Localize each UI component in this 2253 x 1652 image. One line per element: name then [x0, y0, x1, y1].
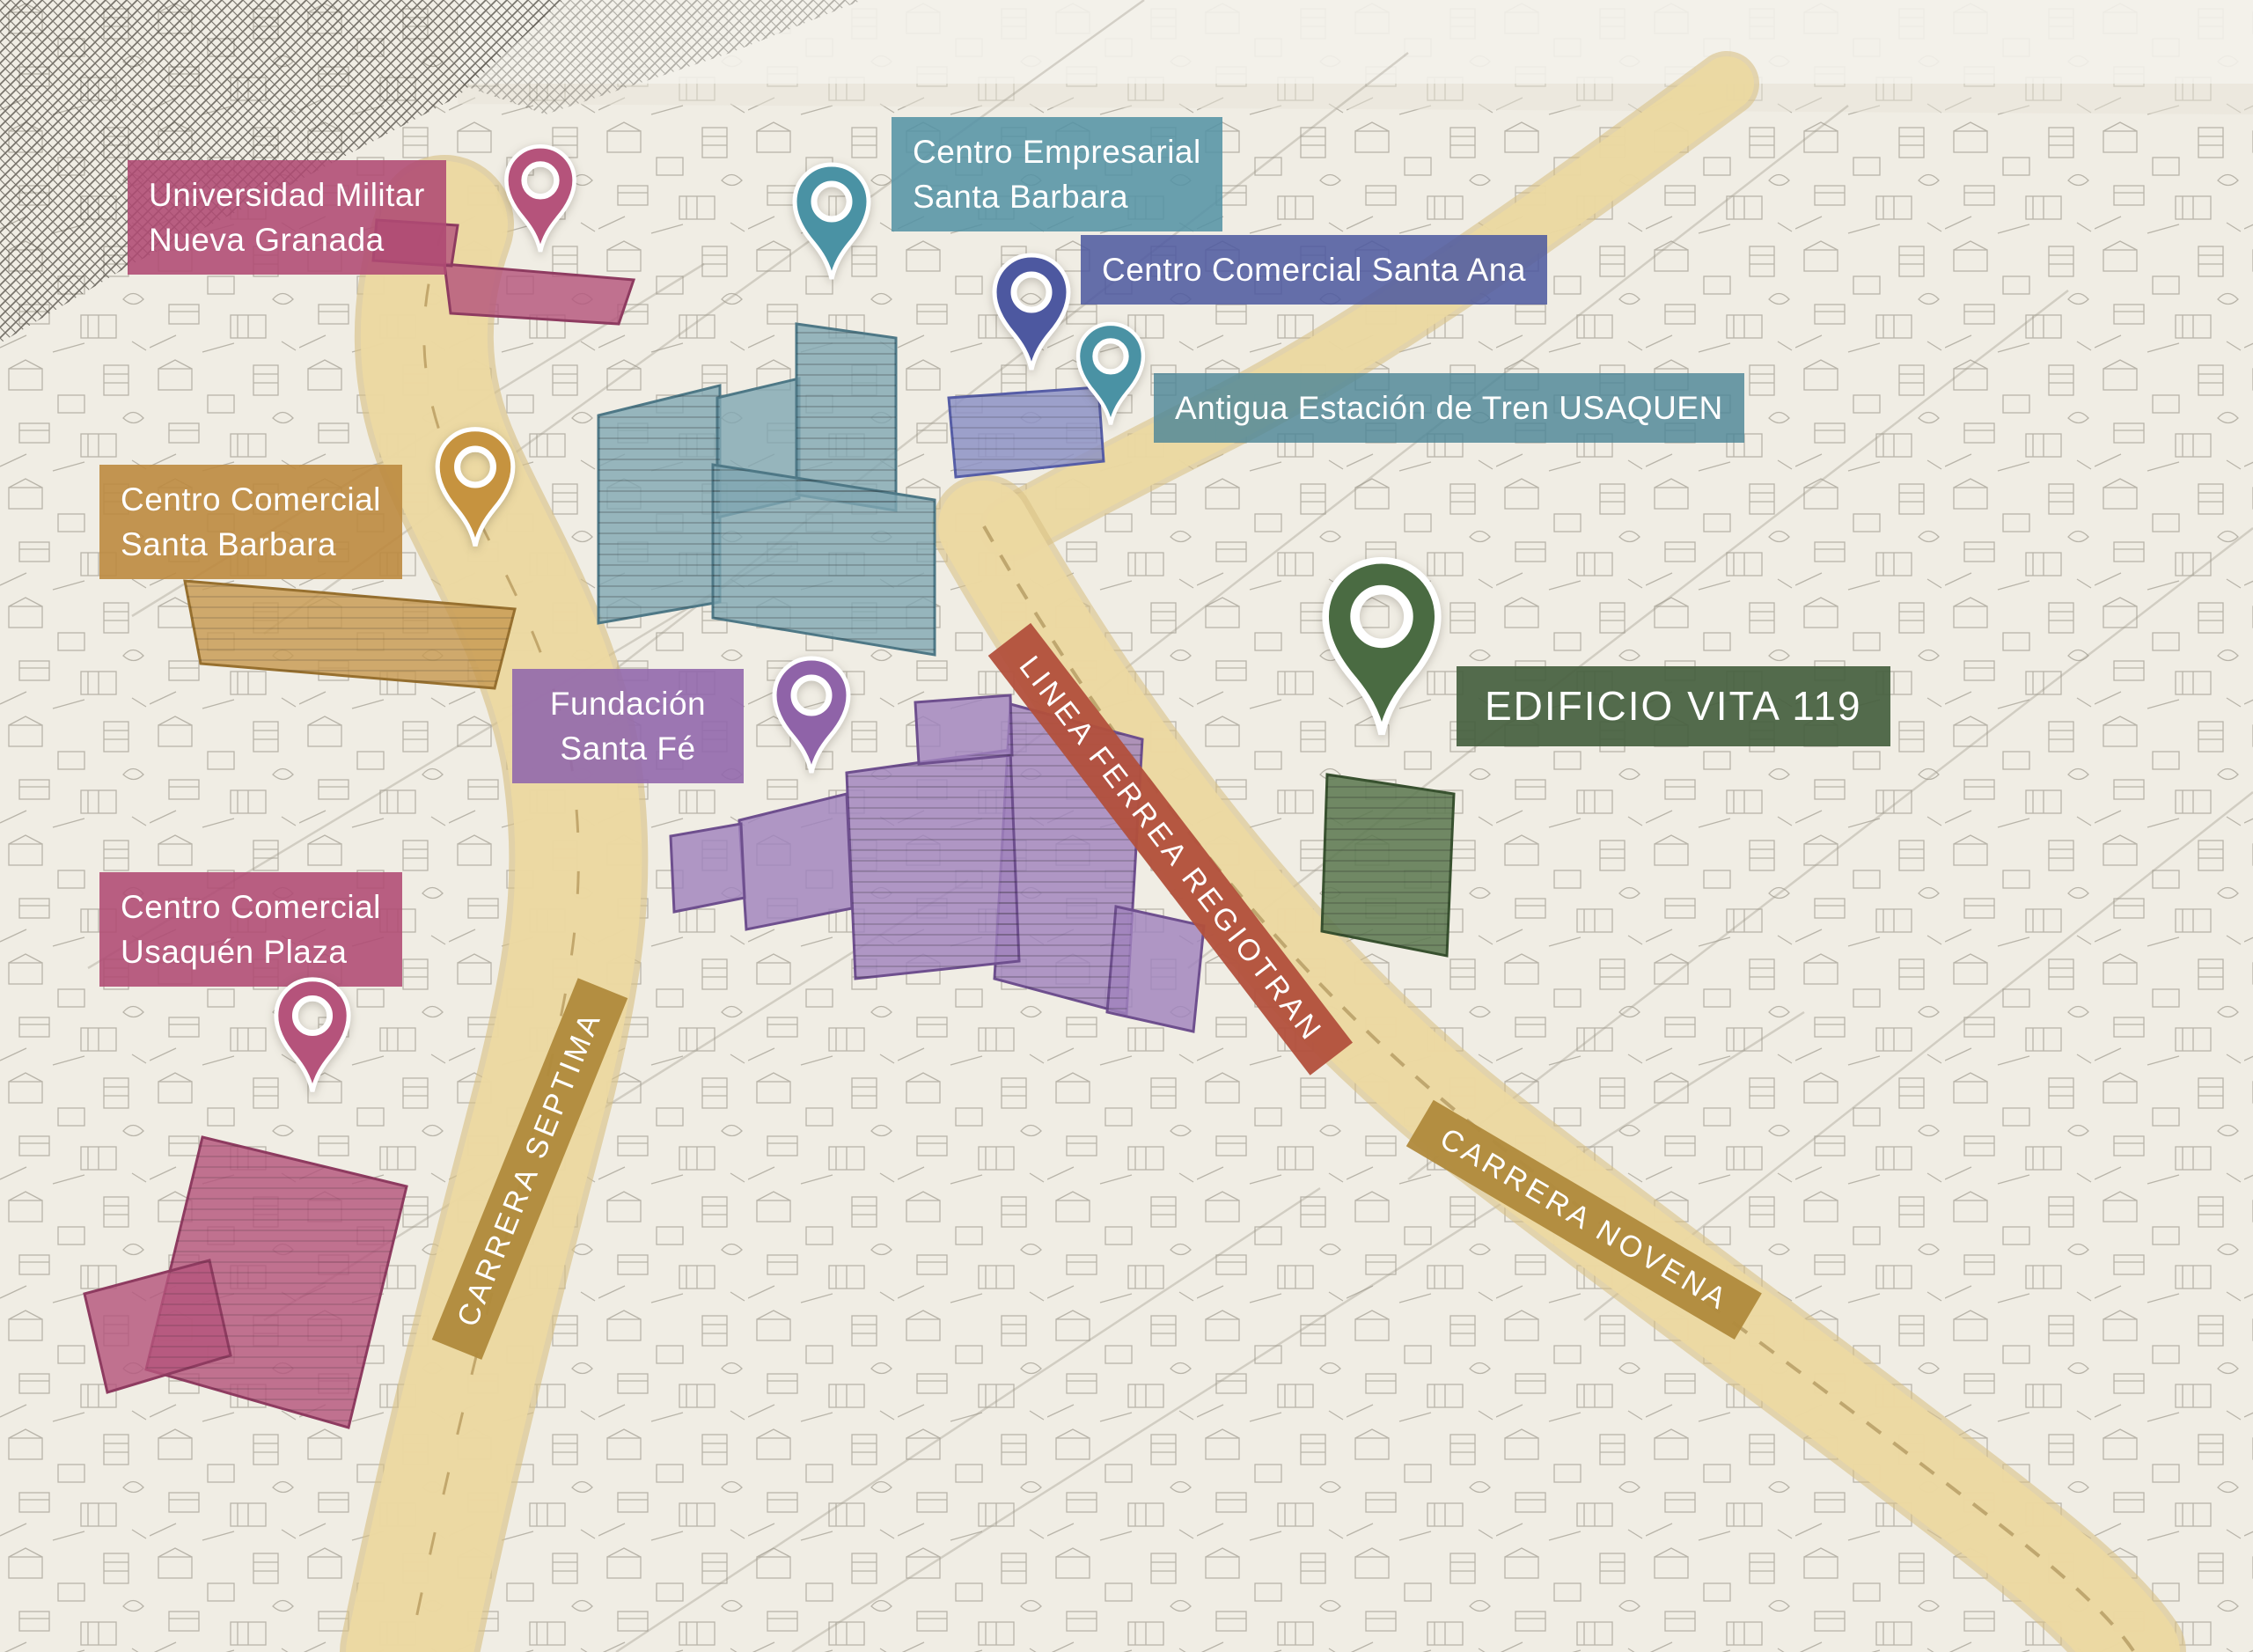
map-pin-icon-centro-empresarial: [788, 151, 876, 294]
landmark-label-centro-empresarial-santa-barbara: Centro Empresarial Santa Barbara: [892, 117, 1222, 231]
landmark-label-centro-comercial-santa-barbara: Centro Comercial Santa Barbara: [99, 465, 402, 579]
map-pin-icon-edificio-vita-119: [1315, 551, 1449, 746]
map-pin-icon-universidad-militar: [500, 134, 581, 266]
map-pin-icon-centro-comercial-santa-barbara: [430, 422, 520, 554]
illustrated-city-map: CARRERA SEPTIMA LINEA FERREA REGIOTRAN C…: [0, 0, 2253, 1652]
landmark-label-universidad-militar: Universidad Militar Nueva Granada: [128, 160, 446, 275]
landmark-label-antigua-estacion-tren-usaquen: Antigua Estación de Tren USAQUEN: [1154, 373, 1744, 443]
landmark-label-fundacion-santa-fe: Fundación Santa Fé: [512, 669, 744, 783]
landmark-label-centro-comercial-usaquen-plaza: Centro Comercial Usaquén Plaza: [99, 872, 402, 987]
map-pin-icon-usaquen-plaza: [269, 959, 356, 1113]
map-pin-icon-fundacion-santa-fe: [767, 651, 855, 782]
landmark-label-edificio-vita-119: EDIFICIO VITA 119: [1457, 666, 1890, 746]
landmark-label-centro-comercial-santa-ana: Centro Comercial Santa Ana: [1081, 235, 1547, 305]
map-pin-icon-centro-comercial-santa-ana: [987, 248, 1075, 378]
map-pin-icon-antigua-estacion: [1072, 317, 1149, 433]
